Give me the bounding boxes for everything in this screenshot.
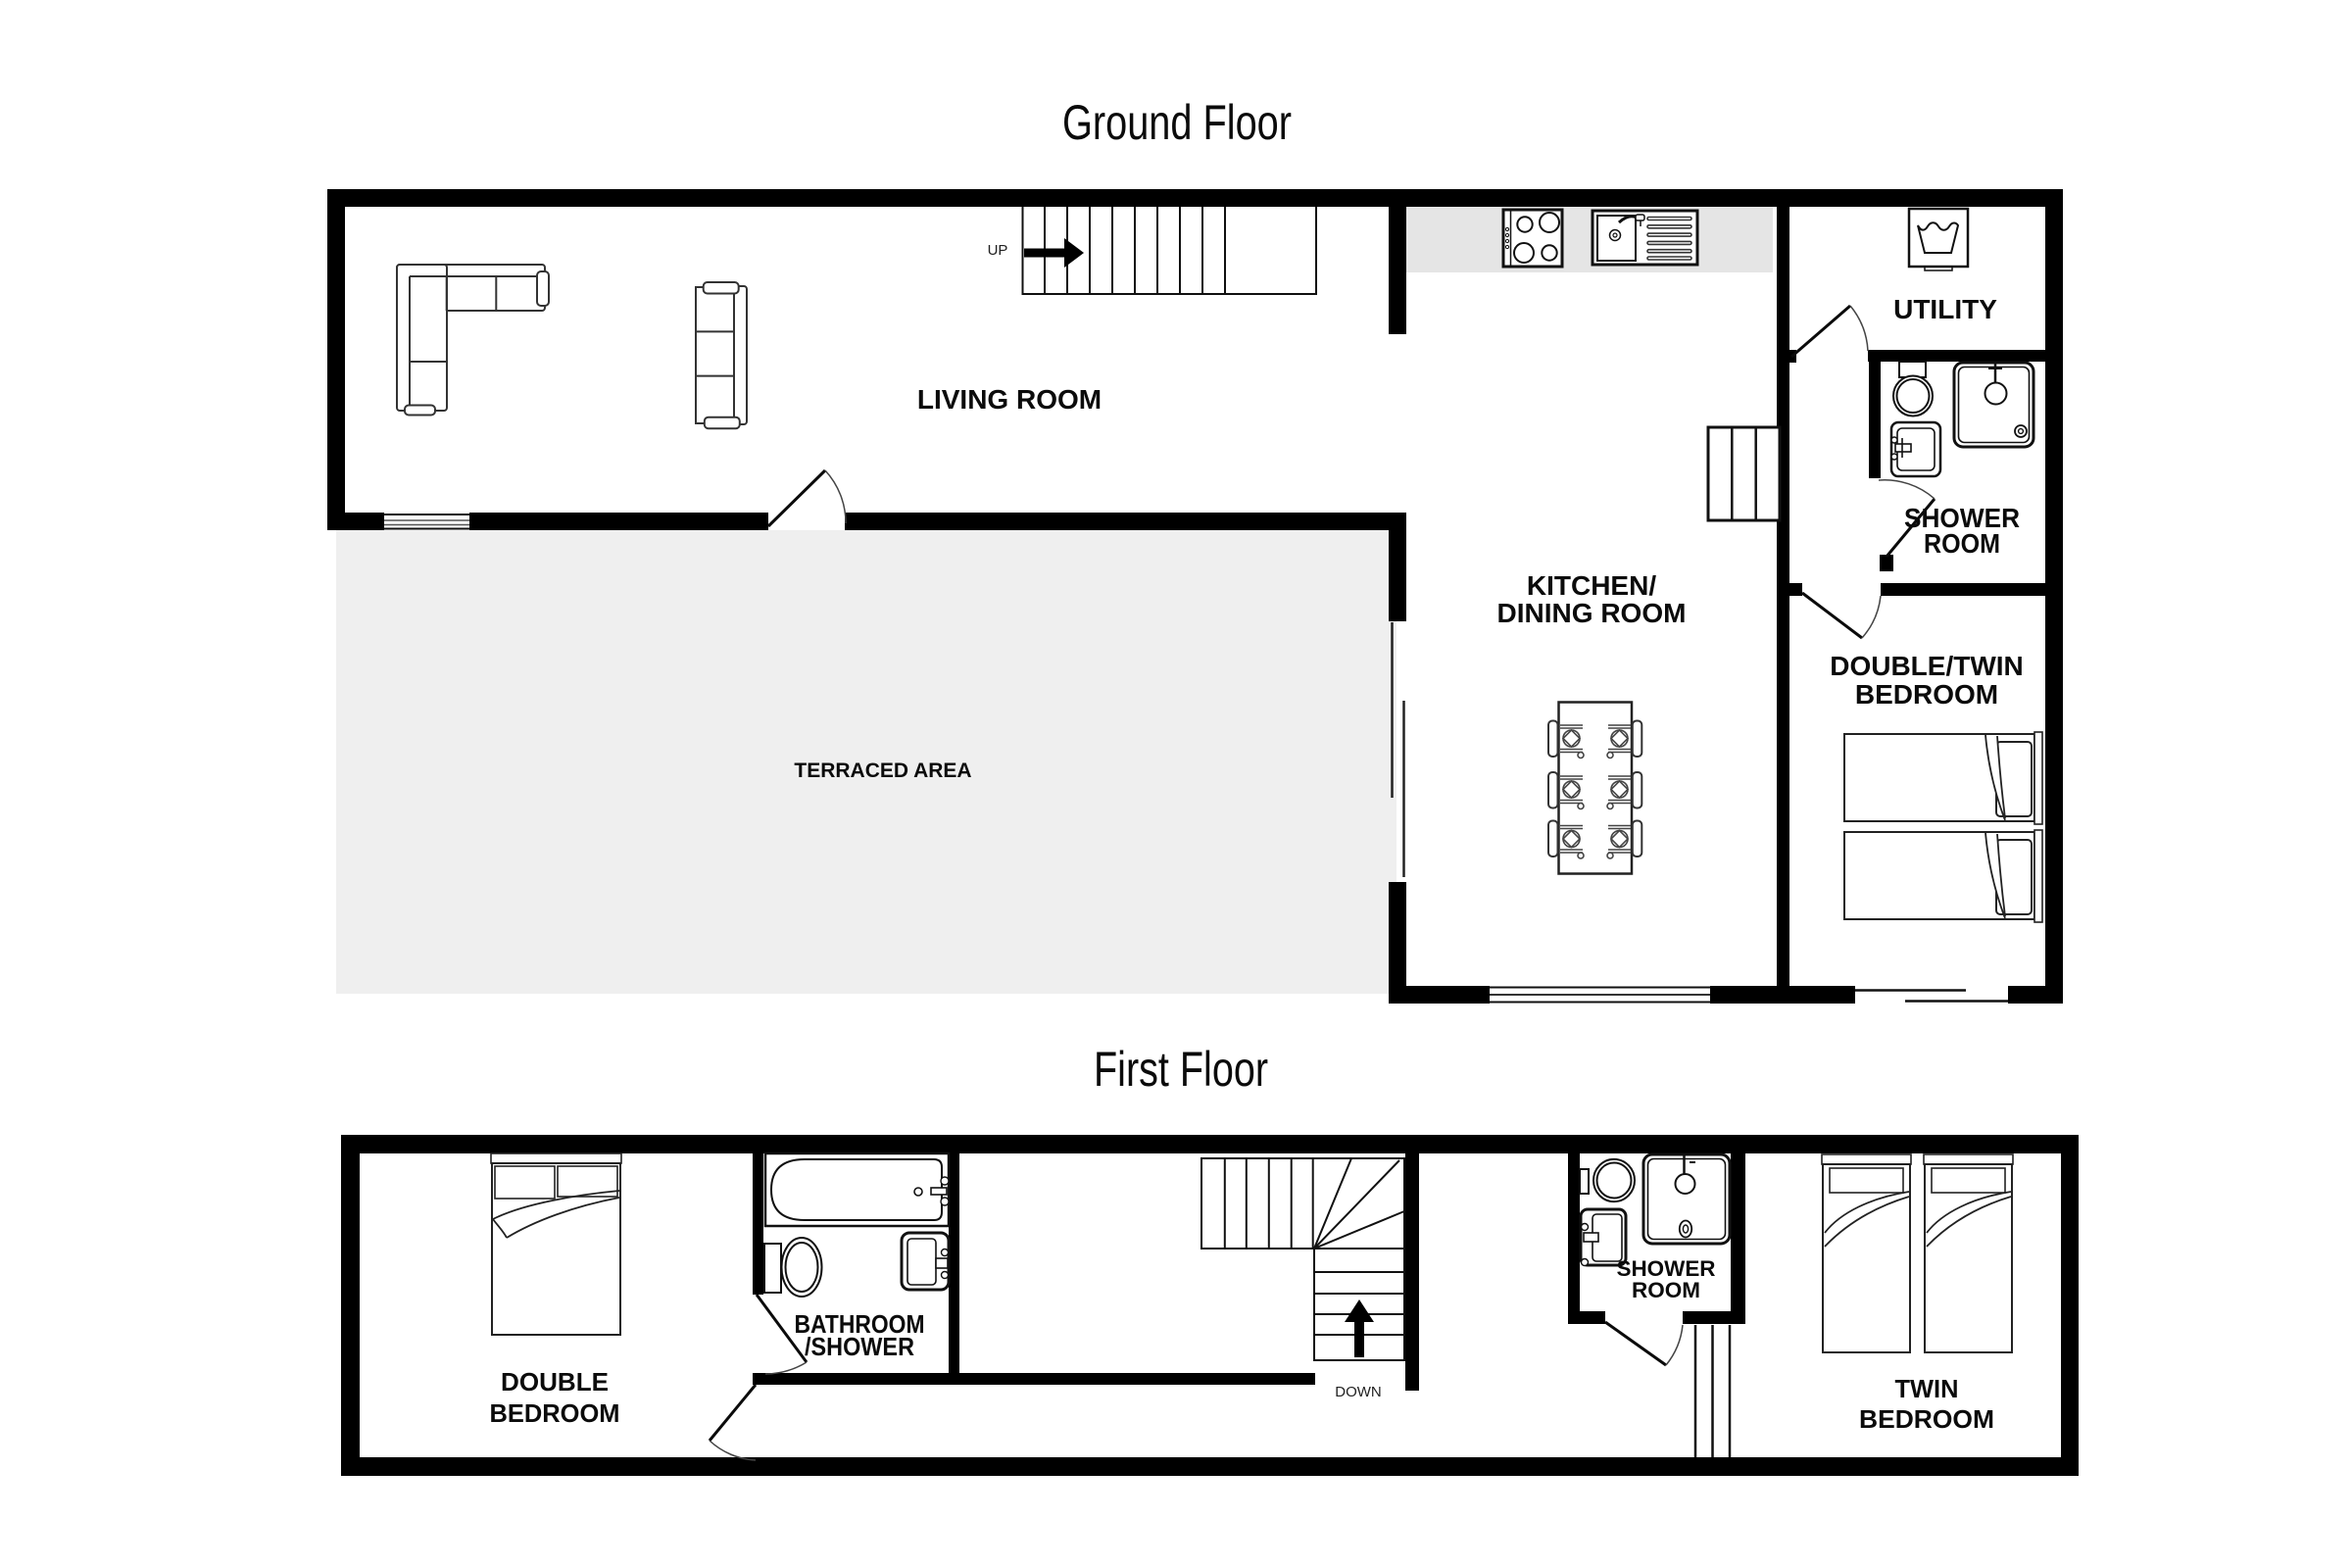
svg-text:DOUBLE/TWIN: DOUBLE/TWIN: [1830, 651, 2024, 681]
svg-text:DOUBLE: DOUBLE: [501, 1367, 609, 1396]
svg-text:TERRACED AREA: TERRACED AREA: [794, 759, 971, 782]
svg-text:BEDROOM: BEDROOM: [490, 1398, 620, 1428]
svg-text:Ground Floor: Ground Floor: [1062, 95, 1292, 150]
svg-text:/SHOWER: /SHOWER: [805, 1332, 914, 1361]
svg-text:ROOM: ROOM: [1632, 1278, 1700, 1302]
svg-text:ROOM: ROOM: [1924, 528, 2000, 559]
svg-text:BEDROOM: BEDROOM: [1859, 1404, 1994, 1434]
svg-text:TWIN: TWIN: [1895, 1374, 1959, 1403]
svg-text:KITCHEN/: KITCHEN/: [1527, 570, 1656, 601]
svg-text:DOWN: DOWN: [1335, 1384, 1382, 1400]
svg-text:BEDROOM: BEDROOM: [1855, 679, 1998, 710]
svg-text:DINING ROOM: DINING ROOM: [1497, 598, 1687, 628]
svg-text:UP: UP: [988, 242, 1008, 259]
svg-text:UTILITY: UTILITY: [1893, 294, 1997, 324]
svg-text:LIVING ROOM: LIVING ROOM: [917, 384, 1102, 415]
svg-text:First Floor: First Floor: [1094, 1042, 1268, 1097]
